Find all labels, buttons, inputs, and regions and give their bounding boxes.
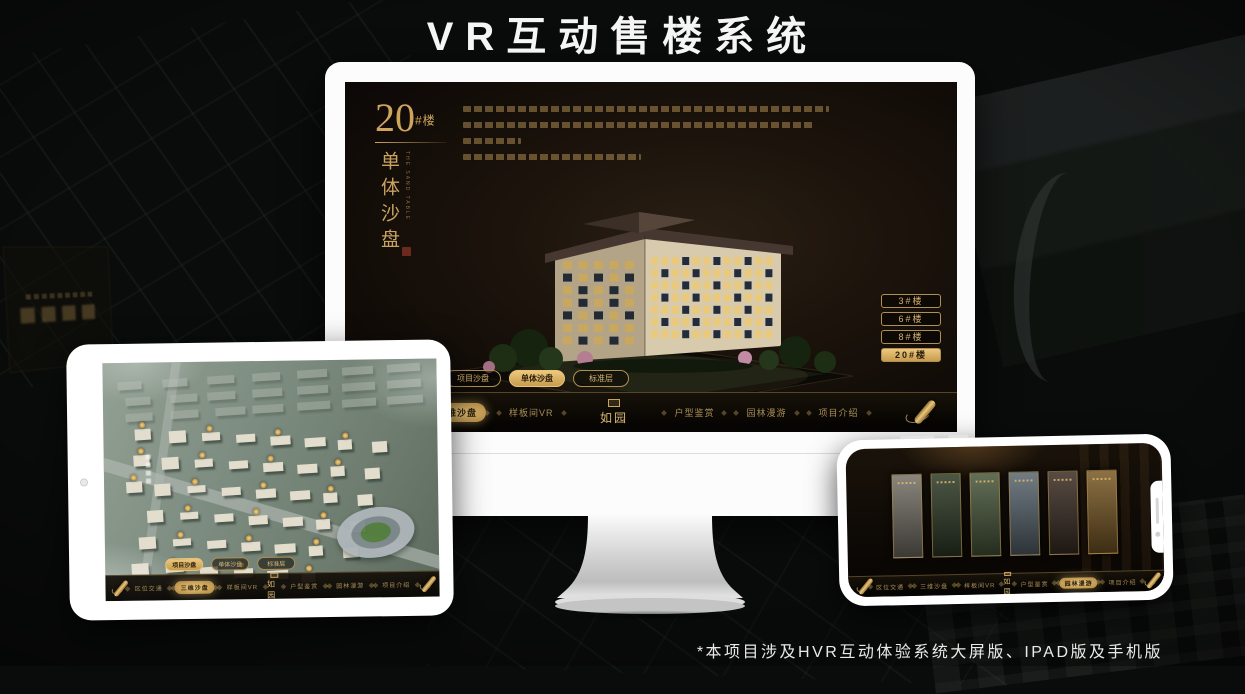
logo-text: 如园 (267, 578, 281, 600)
brand-logo: 如园 (267, 572, 282, 600)
scene-panel[interactable] (931, 473, 963, 558)
scene-panel[interactable] (1086, 470, 1118, 555)
tab[interactable]: 项目沙盘 (165, 558, 203, 572)
scroll-menu-icon[interactable] (905, 398, 945, 428)
menu-item[interactable]: 区位交通 (129, 581, 169, 595)
menu-item[interactable]: 三维沙盘 (915, 580, 953, 592)
logo-seal-icon (1004, 571, 1011, 575)
menu-item[interactable]: 样板间VR (959, 579, 1001, 591)
scene-panel[interactable] (1008, 471, 1040, 556)
scroll-menu-icon[interactable] (419, 574, 433, 594)
menu-item[interactable]: 三维沙盘 (175, 581, 215, 595)
sandtable-tabs: 项目沙盘 单体沙盘 标准层 (445, 370, 629, 387)
ipad-camera-icon (80, 478, 88, 486)
plaque-calligraphy-text (20, 304, 100, 324)
building-number: 20 (375, 98, 415, 138)
menu-item[interactable]: 区位交通 (871, 581, 909, 593)
building-button[interactable]: 20#楼 (881, 348, 941, 362)
river-shape (1006, 169, 1114, 386)
phone-screen: 区位交通三维沙盘样板间VR 如园 户型鉴赏园林漫游项目介绍 (845, 443, 1164, 598)
menu-item[interactable]: 项目介绍 (376, 578, 416, 592)
monitor-stand (550, 514, 750, 620)
tab[interactable]: 单体沙盘 (509, 370, 565, 387)
menu-item[interactable]: 户型鉴赏 (284, 579, 324, 593)
tab[interactable]: 标准层 (573, 370, 629, 387)
menu-item[interactable]: 项目介绍 (810, 403, 868, 422)
menu-item[interactable]: 园林漫游 (330, 578, 370, 592)
tab[interactable]: 单体沙盘 (211, 557, 249, 571)
phone-power-button (948, 435, 968, 438)
description-line (463, 122, 815, 128)
phone-menubar: 区位交通三维沙盘样板间VR 如园 户型鉴赏园林漫游项目介绍 (848, 570, 1164, 598)
speaker-slit-icon (1156, 497, 1160, 523)
menu-right-group: 户型鉴赏园林漫游项目介绍 (658, 403, 874, 422)
menu-left-group: 区位交通三维沙盘样板间VR (126, 580, 268, 595)
description-line (463, 138, 521, 144)
scroll-menu-icon[interactable] (1144, 571, 1156, 591)
menu-item[interactable]: 样板间VR (221, 580, 265, 594)
scene-panel[interactable] (970, 472, 1002, 557)
logo-seal-icon (270, 572, 278, 577)
building-selector: 3#楼 6#楼 8#楼 20#楼 (881, 294, 941, 362)
menu-item[interactable]: 项目介绍 (1103, 576, 1141, 588)
logo-seal-icon (608, 399, 620, 407)
scene-gallery (892, 470, 1119, 559)
logo-text: 如园 (600, 409, 628, 426)
menu-right-group: 户型鉴赏园林漫游项目介绍 (1012, 576, 1144, 590)
footnote-text: *本项目涉及HVR互动体验系统大屏版、IPAD版及手机版 (697, 638, 1163, 662)
section-subtitle-en: THE SAND TABLE (404, 151, 410, 241)
tab[interactable]: 标准层 (257, 557, 295, 571)
menu-item[interactable]: 户型鉴赏 (1015, 577, 1053, 589)
description-line (463, 106, 829, 112)
plaque-small-text (26, 292, 94, 300)
menu-item[interactable]: 户型鉴赏 (665, 403, 723, 422)
phone-notch (1150, 481, 1164, 553)
scene-panel[interactable] (1047, 470, 1079, 555)
menu-item[interactable]: 园林漫游 (737, 403, 795, 422)
menu-item[interactable]: 园林漫游 (1059, 577, 1097, 589)
ipad-sandtable-tabs: 项目沙盘单体沙盘标准层 (165, 557, 295, 572)
scroll-menu-icon[interactable] (856, 577, 868, 597)
red-seal-icon (402, 247, 411, 256)
phone-volume-button (900, 435, 934, 439)
menu-right-group: 户型鉴赏园林漫游项目介绍 (281, 578, 419, 593)
scene-panel[interactable] (892, 474, 924, 559)
brand-logo: 如园 (600, 399, 628, 426)
menu-item[interactable]: 样板间VR (500, 403, 563, 422)
gold-rule (375, 142, 447, 143)
ipad-menubar: 区位交通三维沙盘样板间VR 如园 户型鉴赏园林漫游项目介绍 (105, 571, 439, 602)
building-number-suffix: #楼 (415, 114, 436, 128)
ipad-mockup: 项目沙盘单体沙盘标准层 区位交通三维沙盘样板间VR 如园 户型鉴赏园林漫游项目介… (66, 339, 454, 620)
building-button[interactable]: 6#楼 (881, 312, 941, 326)
tab[interactable]: 项目沙盘 (445, 370, 501, 387)
front-camera-icon (1155, 531, 1160, 536)
background-landscape-photo (943, 35, 1245, 368)
building-button[interactable]: 3#楼 (881, 294, 941, 308)
page-title: VR互动售楼系统 (0, 4, 1245, 62)
menu-left-group: 区位交通三维沙盘样板间VR (868, 579, 1004, 593)
ipad-screen: 项目沙盘单体沙盘标准层 区位交通三维沙盘样板间VR 如园 户型鉴赏园林漫游项目介… (102, 359, 439, 602)
building-button[interactable]: 8#楼 (881, 330, 941, 344)
phone-mockup: 区位交通三维沙盘样板间VR 如园 户型鉴赏园林漫游项目介绍 (836, 434, 1173, 607)
stand-shadow (515, 608, 785, 624)
section-title-vertical: 单体沙盘 (375, 151, 402, 271)
logo-text: 如园 (1003, 576, 1013, 596)
